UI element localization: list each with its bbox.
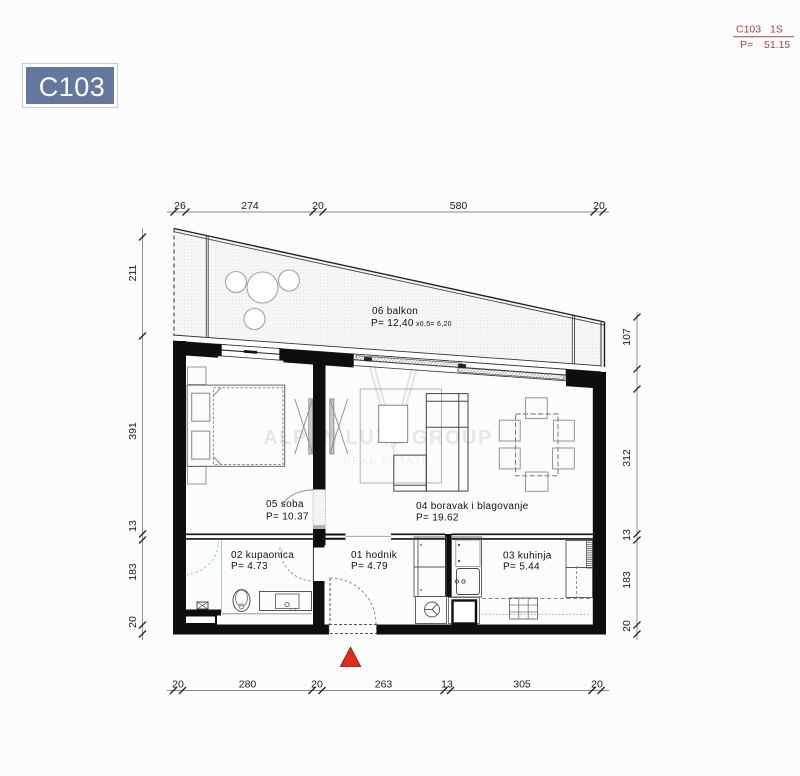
svg-text:20: 20 [311,679,323,691]
svg-text:02 kupaonica: 02 kupaonica [231,550,294,561]
svg-text:312: 312 [621,449,633,467]
svg-text:20: 20 [312,200,324,212]
svg-text:305: 305 [513,679,531,691]
svg-text:280: 280 [239,679,257,691]
svg-text:20: 20 [593,200,605,212]
svg-text:01 hodnik: 01 hodnik [351,550,398,561]
svg-text:P=: P= [740,39,753,51]
svg-text:P= 10.37: P= 10.37 [266,512,309,523]
svg-text:P= 4.79: P= 4.79 [351,561,388,572]
svg-text:P= 5.44: P= 5.44 [503,562,540,573]
svg-text:P= 19.62: P= 19.62 [416,513,459,524]
svg-text:26: 26 [174,200,186,212]
svg-text:20: 20 [172,679,184,691]
svg-text:C103: C103 [736,24,761,36]
svg-text:391: 391 [127,422,139,440]
svg-text:183: 183 [621,571,633,589]
svg-text:263: 263 [375,679,393,691]
svg-text:C103: C103 [39,72,106,102]
svg-text:P= 4.73: P= 4.73 [231,561,268,572]
svg-text:51.15: 51.15 [764,39,790,51]
svg-text:274: 274 [241,200,259,212]
svg-text:05 soba: 05 soba [266,499,304,510]
svg-text:211: 211 [127,264,139,281]
svg-text:20: 20 [591,679,603,691]
svg-text:580: 580 [450,200,468,212]
svg-text:REAL ESTATE: REAL ESTATE [343,456,431,467]
svg-text:13: 13 [441,679,453,691]
svg-text:06 balkon: 06 balkon [372,306,418,317]
svg-text:1S: 1S [770,24,783,36]
svg-text:03 kuhinja: 03 kuhinja [503,551,552,562]
svg-text:13: 13 [127,520,139,532]
svg-text:20: 20 [621,620,633,632]
svg-text:20: 20 [127,616,139,628]
svg-text:107: 107 [621,328,633,346]
svg-text:04 boravak i blagovanje: 04 boravak i blagovanje [416,501,529,512]
svg-text:183: 183 [127,563,139,581]
svg-text:13: 13 [621,529,633,541]
